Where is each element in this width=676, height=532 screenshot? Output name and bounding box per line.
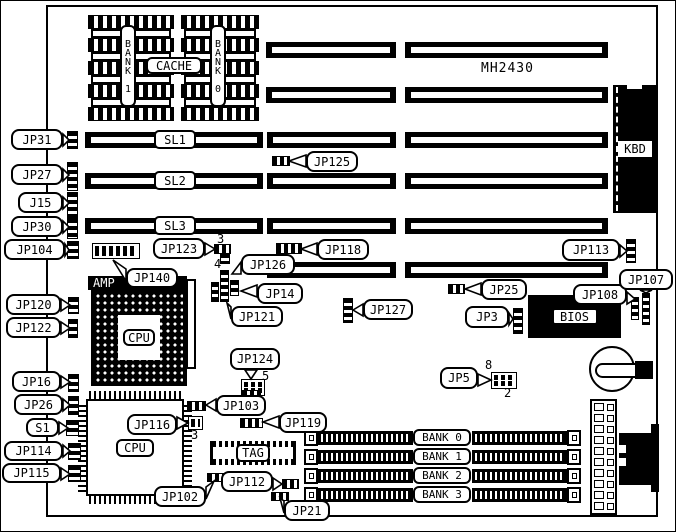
jumper-jp112 xyxy=(282,479,299,489)
jumper-pin-row xyxy=(494,375,514,380)
callout-jp126: JP126 xyxy=(241,254,295,275)
callout-jp5: JP5 xyxy=(440,367,478,389)
jumper-jp122 xyxy=(68,319,78,338)
din-connector-shell xyxy=(651,424,659,492)
callout-jp119: JP119 xyxy=(279,412,327,433)
callout-jp113: JP113 xyxy=(562,239,620,261)
callout-jp116: JP116 xyxy=(127,414,177,435)
power-pin xyxy=(607,470,614,477)
slot-row-3-seg-3 xyxy=(405,132,608,148)
power-pin xyxy=(594,447,604,455)
power-pin xyxy=(607,415,614,422)
power-connector xyxy=(590,399,617,515)
slot-label-sl1: SL1 xyxy=(154,130,196,149)
power-pin xyxy=(607,459,614,466)
jumper-jp118 xyxy=(276,243,302,254)
power-pin xyxy=(607,437,614,444)
callout-jp123: JP123 xyxy=(153,238,205,259)
power-pin xyxy=(607,492,614,499)
slot-row-3-seg-2 xyxy=(267,132,396,148)
jumper-jp123-b xyxy=(220,253,230,264)
callout-jp118: JP118 xyxy=(317,239,369,260)
slot-row-4-seg-2 xyxy=(267,173,396,189)
power-pin xyxy=(594,458,604,466)
callout-jp31: JP31 xyxy=(11,129,63,150)
jumper-jp104 xyxy=(67,241,79,259)
jumper-jp115 xyxy=(68,465,81,482)
simm-clip-latch xyxy=(309,473,314,479)
power-pin xyxy=(594,469,604,477)
slot-stripe xyxy=(272,47,390,53)
slot-row-5-seg-2 xyxy=(267,218,396,234)
pin-number: 8 xyxy=(485,358,492,372)
simm-bar xyxy=(472,431,567,445)
callout-jp30: JP30 xyxy=(11,216,63,237)
slot-stripe xyxy=(272,92,390,98)
jumper-jp114 xyxy=(68,443,81,460)
keyboard-connector-label: KBD xyxy=(618,141,652,157)
slot-row-6-seg-2 xyxy=(405,262,608,278)
bank-label-2: BANK 2 xyxy=(413,467,471,484)
jumper-jp26 xyxy=(68,396,79,415)
callout-jp122: JP122 xyxy=(6,317,61,338)
simm-bar-ticks xyxy=(321,434,410,442)
cpu-socket-label: CPU xyxy=(123,329,155,346)
slot-row-2-seg-2 xyxy=(405,87,608,103)
jumper-jp27 xyxy=(67,162,78,191)
bank-label-1: BANK 1 xyxy=(413,448,471,465)
simm-bar-ticks xyxy=(321,472,410,480)
simm-bar-ticks xyxy=(475,434,564,442)
slot-stripe xyxy=(411,92,602,98)
callout-jp108: JP108 xyxy=(573,284,627,305)
power-pin xyxy=(594,425,604,433)
memory-chip-row xyxy=(88,107,174,121)
callout-jp112: JP112 xyxy=(221,471,273,492)
jumper-jp107 xyxy=(642,293,650,325)
jumper-jp140 xyxy=(92,243,140,259)
callout-jp120: JP120 xyxy=(6,294,61,315)
callout-jp125: JP125 xyxy=(306,151,358,172)
callout-jp115: JP115 xyxy=(2,463,61,483)
pin-number: 3 xyxy=(217,232,224,246)
power-pin xyxy=(607,426,614,433)
simm-bar-ticks xyxy=(475,453,564,461)
bank0-column-label: BANK 0 xyxy=(210,25,226,107)
callout-s1: S1 xyxy=(26,418,59,437)
slot-row-4-seg-3 xyxy=(405,173,608,189)
simm-clip-latch xyxy=(309,435,314,441)
pin-number: 2 xyxy=(504,386,511,400)
slot-row-1-seg-2 xyxy=(405,42,608,58)
jumper-j15 xyxy=(67,192,78,218)
battery-tab xyxy=(595,363,637,378)
jumper-jp126-a xyxy=(211,282,219,302)
callout-jp25: JP25 xyxy=(481,279,527,300)
simm-clip-latch xyxy=(309,492,314,498)
jumper-jp126-b xyxy=(220,270,229,302)
jumper-jp21 xyxy=(271,492,289,501)
callout-jp27: JP27 xyxy=(11,164,63,185)
memory-chip-row xyxy=(181,107,259,121)
cpu-chip-leads-top xyxy=(89,391,181,399)
slot-stripe xyxy=(273,137,390,143)
jumper-jp126-c xyxy=(230,280,239,296)
cpu-socket-center: CPU xyxy=(118,315,160,360)
callout-jp104: JP104 xyxy=(4,239,65,260)
jumper-pin-row xyxy=(191,422,200,427)
callout-jp124: JP124 xyxy=(230,348,280,370)
keyboard-connector-notch xyxy=(627,85,642,89)
callout-jp14: JP14 xyxy=(257,283,303,304)
callout-jp103: JP103 xyxy=(216,395,266,416)
jumper-jp120 xyxy=(68,297,79,314)
jumper-pin-row xyxy=(95,251,137,256)
slot-stripe xyxy=(273,223,390,229)
keyboard-connector: KBD xyxy=(613,85,657,213)
power-pin xyxy=(607,448,614,455)
jumper-jp30 xyxy=(67,218,78,239)
simm-bar-ticks xyxy=(475,491,564,499)
callout-jp16: JP16 xyxy=(12,371,61,392)
simm-bar xyxy=(472,469,567,483)
callout-jp102: JP102 xyxy=(154,486,206,507)
tag-label: TAG xyxy=(236,444,270,462)
jumper-jp16 xyxy=(68,374,79,392)
slot-row-5-seg-3 xyxy=(405,218,608,234)
slot-label-sl2: SL2 xyxy=(154,171,196,190)
slot-stripe xyxy=(273,178,390,184)
cpu-chip-label: CPU xyxy=(116,439,154,457)
power-pin xyxy=(594,403,604,411)
callout-jp127: JP127 xyxy=(363,299,413,320)
jumper-jp31 xyxy=(67,131,78,149)
simm-clip-right xyxy=(567,449,581,465)
slot-stripe xyxy=(411,137,602,143)
simm-clip-latch xyxy=(572,492,577,498)
pin-number: 3 xyxy=(191,428,198,442)
simm-bar-ticks xyxy=(475,472,564,480)
power-pin xyxy=(594,502,604,510)
cpu-socket-lever xyxy=(186,279,196,369)
jumper-jp3 xyxy=(513,308,523,334)
callout-jp3: JP3 xyxy=(465,306,509,328)
amp-label: AMP xyxy=(93,276,115,290)
pin-number: 5 xyxy=(262,369,269,383)
din-connector xyxy=(619,433,653,485)
power-pin xyxy=(607,404,614,411)
simm-clip-left xyxy=(304,449,318,465)
jumper-jp125 xyxy=(272,156,290,166)
slot-row-2-seg-1 xyxy=(266,87,396,103)
bank1-column-label: BANK 1 xyxy=(120,25,136,107)
simm-clip-right xyxy=(567,430,581,446)
callout-jp114: JP114 xyxy=(4,441,63,461)
jumper-jp127 xyxy=(343,298,353,323)
callout-jp140: JP140 xyxy=(126,268,178,288)
simm-clip-latch xyxy=(572,435,577,441)
slot-stripe xyxy=(411,47,602,53)
jumper-jp113 xyxy=(626,239,636,263)
simm-clip-latch xyxy=(572,473,577,479)
simm-clip-right xyxy=(567,468,581,484)
jumper-jp119 xyxy=(240,418,263,428)
slot-stripe xyxy=(411,178,602,184)
slot-stripe xyxy=(411,267,602,273)
jumper-jp25 xyxy=(448,284,465,294)
din-connector-notch xyxy=(619,458,626,466)
simm-clip-latch xyxy=(572,454,577,460)
cache-label: CACHE xyxy=(146,57,202,74)
slot-row-1-seg-1 xyxy=(266,42,396,58)
simm-bar xyxy=(472,450,567,464)
battery-tab-end xyxy=(635,361,653,379)
power-pin xyxy=(594,414,604,422)
simm-bar-ticks xyxy=(321,453,410,461)
simm-clip-latch xyxy=(309,454,314,460)
power-pin xyxy=(594,491,604,499)
power-pin xyxy=(607,481,614,488)
pin-number: 4 xyxy=(214,257,221,271)
callout-jp21: JP21 xyxy=(284,500,330,521)
callout-j15: J15 xyxy=(18,192,63,213)
bank-label-3: BANK 3 xyxy=(413,486,471,503)
callout-jp107: JP107 xyxy=(619,269,673,290)
power-pin xyxy=(594,480,604,488)
simm-bar xyxy=(318,488,413,502)
board-model-text: MH2430 xyxy=(481,61,534,76)
simm-clip-right xyxy=(567,487,581,503)
simm-clip-left xyxy=(304,468,318,484)
power-pin xyxy=(594,436,604,444)
jumper-pin-row xyxy=(244,382,262,387)
callout-jp121: JP121 xyxy=(231,306,283,327)
power-pin xyxy=(607,503,614,510)
tag-ram-chip: TAG xyxy=(210,441,296,465)
bios-label: BIOS xyxy=(552,308,598,325)
bank-label-0: BANK 0 xyxy=(413,429,471,446)
din-connector-notch xyxy=(619,445,626,453)
jumper-s1 xyxy=(66,420,79,436)
simm-bar xyxy=(318,431,413,445)
slot-stripe xyxy=(411,223,602,229)
jumper-jp108 xyxy=(631,297,639,320)
jumper-jp103-a xyxy=(187,401,206,411)
cpu-socket: CPU xyxy=(91,289,187,386)
callout-jp26: JP26 xyxy=(14,394,63,415)
simm-bar-ticks xyxy=(321,491,410,499)
simm-bar xyxy=(318,469,413,483)
slot-label-sl3: SL3 xyxy=(154,216,196,235)
simm-bar xyxy=(472,488,567,502)
simm-bar xyxy=(318,450,413,464)
motherboard-diagram: MH2430 BANK 1 BANK 0 CACHE AMP CPU CPU T… xyxy=(0,0,676,532)
